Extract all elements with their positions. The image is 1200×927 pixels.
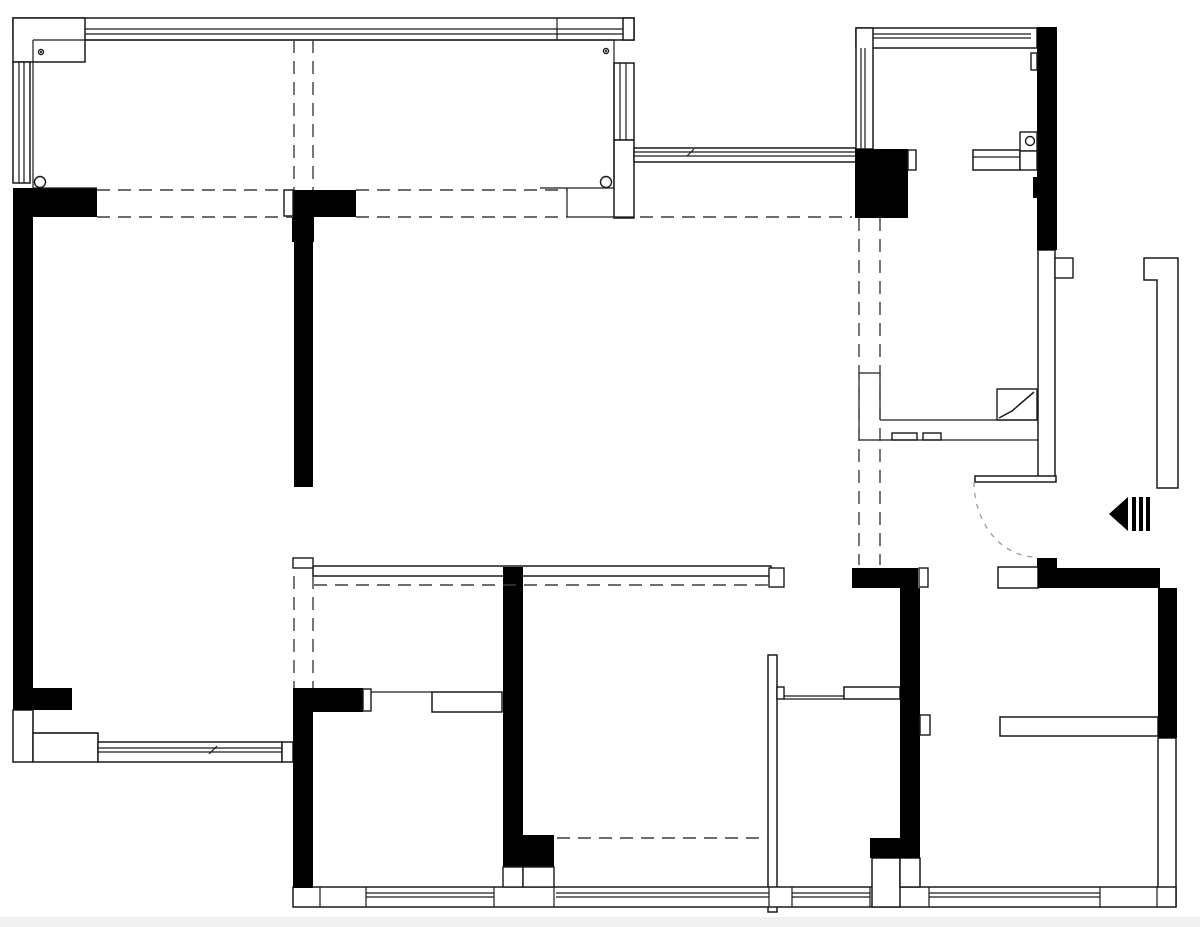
mid-wall-stem: [294, 242, 313, 487]
bedroom3-right-hollow-wall: [1158, 738, 1176, 906]
bedroom2-band-left-step: [293, 558, 313, 568]
kitchen-flue-block: [855, 149, 908, 218]
bedroom1-left-wall: [293, 688, 313, 888]
kitchen-flue-notch-box: [908, 150, 916, 170]
bedroom2-right-thin-wall: [768, 655, 777, 912]
balcony-left-window: [13, 62, 30, 183]
bedroom2-top-wall-band: [313, 566, 771, 576]
bedroom-divider-foot: [503, 835, 554, 867]
divider-bottom-box-left: [503, 867, 523, 887]
balcony-screw-topleft-dot: [40, 51, 42, 53]
bedroom2-band-right-jamb: [769, 568, 784, 587]
page-footer-strip: [0, 917, 1200, 927]
bedroom3-top-wall: [1038, 568, 1160, 588]
kitchen-wall-switch-box: [1031, 53, 1037, 70]
connector-window-band: [634, 148, 856, 162]
bedroom3-window-box: [998, 567, 1038, 588]
bedroom1-door-jamb-box: [363, 689, 371, 711]
entry-arrow-bar-2: [1139, 497, 1143, 531]
entry-wall-notch-box: [1055, 258, 1073, 278]
entry-arrow-bar-3: [1146, 497, 1150, 531]
balcony-right-window: [614, 63, 634, 140]
floor-plan-page: [0, 0, 1200, 927]
bathroom-track-box-2: [923, 433, 941, 440]
bedroom-divider-wall: [503, 567, 523, 863]
hall-wall-cap: [852, 568, 918, 588]
livingroom-left-wall-cap: [13, 688, 72, 710]
balcony-right-wall-lower: [614, 140, 634, 218]
mid-wall-white-box: [284, 190, 293, 216]
divider-bottom-box-right: [523, 867, 554, 887]
hall-left-wall: [900, 588, 920, 858]
corridor-wall-bar: [844, 687, 900, 699]
hall-wall-hollow-stem: [900, 858, 920, 887]
livingroom-topleft-wall: [13, 188, 97, 217]
hall-door-stop-box: [920, 715, 930, 735]
livingroom-bottom-corner-step: [33, 733, 98, 762]
floor-plan-canvas: [0, 0, 1200, 927]
entry-arrow-bar-1: [1132, 497, 1136, 531]
kitchen-right-wall: [1037, 27, 1057, 250]
bedroom2-wall-hinge-box: [777, 687, 784, 699]
balcony-screw-topright-dot: [605, 50, 607, 52]
bedroom3-right-wall: [1158, 588, 1177, 738]
mid-wall-stem-upper: [292, 217, 314, 242]
hall-cap-white-box: [919, 568, 928, 587]
entry-wall-stub: [1037, 558, 1057, 568]
hall-wall-foot: [870, 838, 920, 858]
livingroom-bottom-corner-block: [13, 710, 33, 762]
kitchen-right-wall-step: [1033, 177, 1037, 198]
bedroom1-top-wall: [293, 688, 363, 712]
bathroom-track-box-1: [892, 433, 917, 440]
entry-right-hollow-wall: [1038, 250, 1055, 477]
mid-wall-t-bar: [293, 190, 356, 217]
kitchen-sink-cabinet-lower: [1020, 151, 1037, 170]
bedroom1-door-wall-bar: [432, 692, 502, 712]
kitchen-counter: [973, 150, 1020, 170]
hall-bottom-hollow-box: [872, 858, 900, 907]
livingroom-bottom-window-endbox: [282, 742, 293, 762]
entry-door-header-wall: [975, 476, 1056, 482]
livingroom-left-wall: [13, 217, 33, 688]
balcony-top-right-corner-box: [623, 18, 634, 40]
bedroom3-wardrobe: [1000, 717, 1158, 736]
